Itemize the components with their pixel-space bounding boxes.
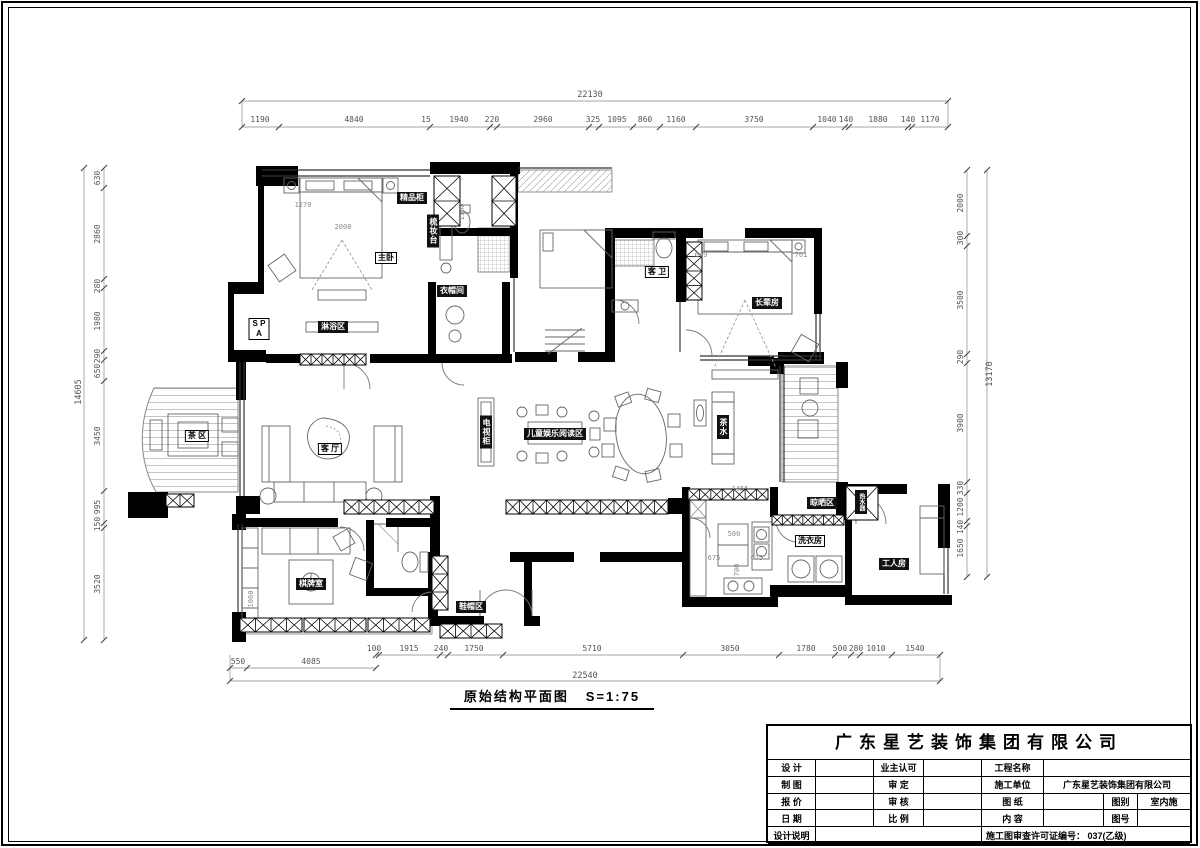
tb-value-drawing <box>1044 794 1104 811</box>
dim-label: 675 <box>751 554 764 562</box>
dim-label: 330 <box>956 481 965 496</box>
tb-label-approve: 审 定 <box>874 777 924 794</box>
tb-label-design: 设 计 <box>768 760 816 777</box>
tb-label-owner-ok: 业主认可 <box>874 760 924 777</box>
dim-label: 1095 <box>607 115 626 124</box>
room-label-guest-bath: 客 卫 <box>645 266 669 278</box>
tb-label-date: 日 期 <box>768 810 816 827</box>
tb-label-drawing: 图 纸 <box>982 794 1044 811</box>
tb-value-scale <box>924 810 982 827</box>
tb-value-design <box>816 760 874 777</box>
dim-label: 240 <box>434 644 449 653</box>
dim-label: 1915 <box>399 644 418 653</box>
dim-label: 1455 <box>732 485 749 493</box>
dim-label: 3050 <box>720 644 739 653</box>
room-label-children-area: 儿童娱乐阅读区 <box>524 428 586 440</box>
dim-label: 630 <box>93 171 102 186</box>
room-label-tea-area: 茶 区 <box>185 430 209 442</box>
tb-value-number <box>1138 810 1190 827</box>
window-lines <box>238 168 948 612</box>
room-label-spa: S P A <box>249 318 270 340</box>
tb-value-draft <box>816 777 874 794</box>
room-label-master-bedroom: 主卧 <box>375 252 397 264</box>
company-name: 广东星艺装饰集团有限公司 <box>768 726 1190 760</box>
dim-label: 1190 <box>250 115 269 124</box>
tb-label-quote: 报 价 <box>768 794 816 811</box>
room-label-dressing-table: 梳妆台 <box>427 215 439 248</box>
dim-label: 1780 <box>796 644 815 653</box>
dim-label: 500 <box>833 644 848 653</box>
dim-label: 13170 <box>985 361 995 387</box>
dim-label: 150 <box>93 517 102 532</box>
dim-label: 2960 <box>533 115 552 124</box>
dim-label: 1170 <box>920 115 939 124</box>
dim-label: 1750 <box>464 644 483 653</box>
dim-label: 649 <box>695 251 708 259</box>
tb-value-category: 室内施 <box>1138 794 1190 811</box>
dim-label: 1200 <box>956 497 965 516</box>
dim-label: 500 <box>728 530 741 538</box>
room-label-tea-cabinet: 茶水 <box>717 415 729 439</box>
tb-license: 施工图审查许可证编号： 037(乙级) <box>982 827 1190 844</box>
dim-label: 290 <box>956 350 965 365</box>
tb-label-draft: 制 图 <box>768 777 816 794</box>
room-label-cloakroom: 衣帽间 <box>437 285 467 297</box>
dim-label: 550 <box>231 657 246 666</box>
room-label-worker-room: 工人房 <box>879 558 909 570</box>
dim-label: 325 <box>586 115 601 124</box>
dim-label: 1010 <box>866 644 885 653</box>
dim-label: 675 <box>708 554 721 562</box>
tb-value-contractor: 广东星艺装饰集团有限公司 <box>1044 777 1190 794</box>
tb-notes-blank <box>816 827 982 844</box>
tb-value-date <box>816 810 874 827</box>
dim-label: 2860 <box>93 224 102 243</box>
room-label-drying-area: 晾晒区 <box>807 497 837 509</box>
dim-label: 700 <box>733 564 741 577</box>
dim-label: 140 <box>956 520 965 535</box>
dim-label: 1270 <box>295 201 312 209</box>
tb-label-project: 工程名称 <box>982 760 1044 777</box>
dim-label: 1980 <box>93 311 102 330</box>
tb-value-quote <box>816 794 874 811</box>
dim-label: 2000 <box>335 223 352 231</box>
dim-label: 4840 <box>344 115 363 124</box>
dim-label: 1160 <box>666 115 685 124</box>
room-label-living-room: 客 厅 <box>318 443 342 455</box>
caption-scale: S=1:75 <box>586 689 640 704</box>
drawing-sheet: 2213011904840151940220296032510958601160… <box>0 0 1200 848</box>
room-label-shower-area: 淋浴区 <box>318 321 348 333</box>
dim-label: 280 <box>849 644 864 653</box>
room-label-laundry: 洗衣房 <box>795 535 825 547</box>
dim-label: 22130 <box>577 90 603 100</box>
dim-label: 100 <box>367 644 382 653</box>
dim-label: 3500 <box>956 290 965 309</box>
dim-label: 290 <box>93 349 102 364</box>
caption-title: 原始结构平面图 <box>464 689 569 704</box>
title-block: 广东星艺装饰集团有限公司 设 计 业主认可 工程名称 制 图 审 定 施工单位 … <box>766 724 1192 843</box>
room-label-chess-room: 棋牌室 <box>296 578 326 590</box>
tb-value-approve <box>924 777 982 794</box>
title-block-grid: 设 计 业主认可 工程名称 制 图 审 定 施工单位 广东星艺装饰集团有限公司 … <box>768 760 1190 844</box>
dim-label: 1650 <box>956 538 965 557</box>
tb-value-owner-ok <box>924 760 982 777</box>
dim-label: 2000 <box>956 193 965 212</box>
dim-label: 1100 <box>458 204 466 221</box>
tb-label-category: 图别 <box>1104 794 1138 811</box>
dim-label: 140 <box>839 115 854 124</box>
dim-label: 3450 <box>93 426 102 445</box>
tb-label-scale: 比 例 <box>874 810 924 827</box>
dim-label: 860 <box>638 115 653 124</box>
dim-label: 280 <box>93 279 102 294</box>
room-label-water-heater: 热水器 <box>855 490 867 514</box>
tb-value-check <box>924 794 982 811</box>
dim-label: 140 <box>901 115 916 124</box>
dim-label: 4085 <box>301 657 320 666</box>
tb-label-notes: 设计说明 <box>768 827 816 844</box>
tb-label-check: 审 核 <box>874 794 924 811</box>
drawing-caption: 原始结构平面图 S=1:75 <box>392 686 712 710</box>
room-label-boutique-cabinet: 精品柜 <box>397 192 427 204</box>
dim-label: 1880 <box>868 115 887 124</box>
dim-label: 650 <box>93 364 102 379</box>
dim-label: 1060 <box>247 591 255 608</box>
dim-label: 5710 <box>582 644 601 653</box>
dim-label: 3900 <box>956 413 965 432</box>
dim-label: 300 <box>956 231 965 246</box>
room-label-elder-room: 长辈房 <box>752 297 782 309</box>
dim-label: 15 <box>421 115 431 124</box>
room-label-shoe-area: 鞋帽区 <box>456 601 486 613</box>
room-label-tv-cabinet: 电视柜 <box>480 416 492 449</box>
dim-label: 3750 <box>744 115 763 124</box>
dim-label: 3520 <box>93 574 102 593</box>
tb-label-content: 内 容 <box>982 810 1044 827</box>
dim-label: 22540 <box>572 671 598 681</box>
tb-value-project <box>1044 760 1190 777</box>
dim-label: 1540 <box>905 644 924 653</box>
dim-label: 14605 <box>74 379 84 405</box>
floor-plan-canvas: 2213011904840151940220296032510958601160… <box>0 0 1200 848</box>
tb-label-contractor: 施工单位 <box>982 777 1044 794</box>
dim-label: 1940 <box>449 115 468 124</box>
dim-label: 701 <box>795 251 808 259</box>
dim-label: 995 <box>93 500 102 515</box>
dim-label: 220 <box>485 115 500 124</box>
tb-label-number: 图号 <box>1104 810 1138 827</box>
tb-value-content <box>1044 810 1104 827</box>
dim-label: 1040 <box>817 115 836 124</box>
